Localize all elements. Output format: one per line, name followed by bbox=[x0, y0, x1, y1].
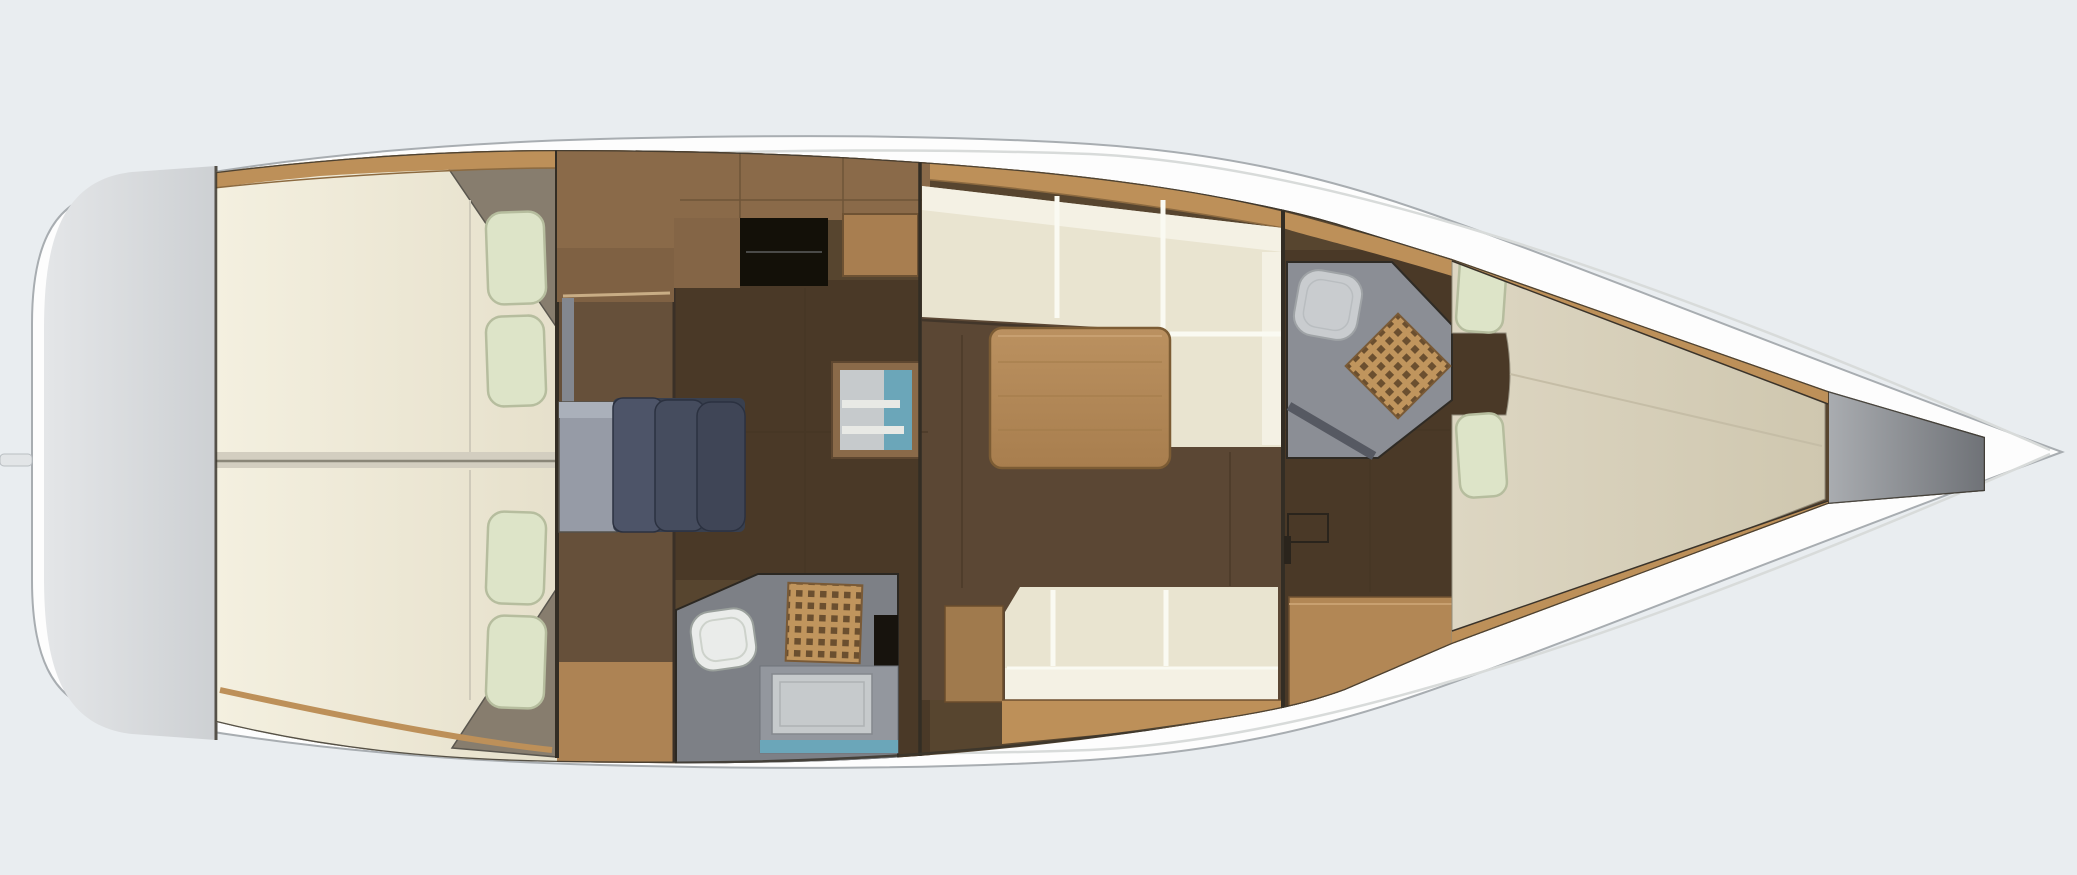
pillow bbox=[485, 615, 546, 709]
vanity-basin bbox=[772, 674, 872, 734]
transom-surface bbox=[44, 166, 216, 740]
sink-shelf bbox=[842, 400, 900, 408]
door-hinge bbox=[1284, 536, 1291, 564]
pillow bbox=[485, 511, 546, 605]
l-settee-backrest-side bbox=[1262, 252, 1283, 445]
head-entry-sole bbox=[557, 662, 677, 764]
floor-plan-canvas bbox=[0, 0, 2077, 875]
steps-landing bbox=[559, 402, 617, 532]
galley-cabinet bbox=[674, 218, 740, 288]
swim-ladder-mark bbox=[0, 454, 32, 466]
straight-settee-backrest bbox=[1005, 668, 1278, 700]
steps-landing-top bbox=[559, 402, 617, 418]
sink-shelf bbox=[842, 426, 904, 434]
salon-table bbox=[990, 328, 1170, 468]
toilet-bowl bbox=[1291, 267, 1365, 343]
toilet bbox=[1291, 267, 1365, 343]
head-locker bbox=[874, 615, 898, 669]
galley-counter-aft bbox=[557, 150, 674, 250]
galley-cabinet-top bbox=[843, 214, 918, 276]
transom-swim-platform bbox=[44, 166, 216, 740]
vanity-teal-strip bbox=[760, 740, 898, 753]
pillow bbox=[485, 211, 546, 305]
sink-water bbox=[884, 370, 912, 450]
pillow bbox=[485, 315, 546, 407]
aft-cabin-starboard bbox=[212, 468, 557, 768]
shower-grate bbox=[786, 583, 863, 664]
step-tread bbox=[697, 402, 745, 531]
toilet bbox=[688, 606, 759, 673]
aft-cabin-port bbox=[212, 148, 557, 454]
pillow bbox=[1455, 412, 1508, 498]
aft-head bbox=[676, 574, 898, 764]
shower-grate-panel bbox=[786, 583, 863, 664]
salon-locker bbox=[945, 606, 1003, 702]
sink-fridge-unit bbox=[832, 362, 920, 458]
toilet-bowl bbox=[688, 606, 759, 673]
companionway-wall bbox=[562, 298, 574, 406]
